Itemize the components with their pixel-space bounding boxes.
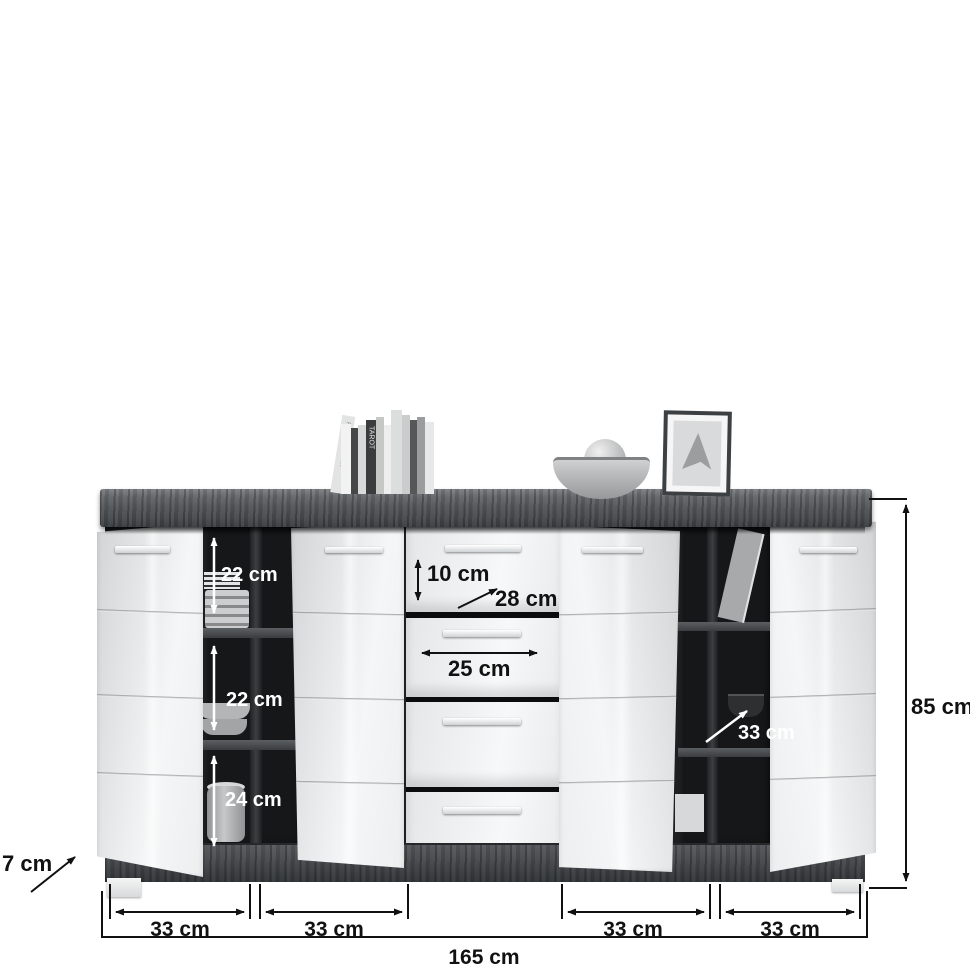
left-shelf-upper xyxy=(203,628,303,638)
drawer-2-handle xyxy=(443,630,521,637)
dim-label-width-2: 33 cm xyxy=(304,919,364,940)
picture-frame-image xyxy=(677,432,716,474)
picture-frame xyxy=(662,410,732,496)
door-far-right xyxy=(770,521,876,877)
dim-label-shelf-1: 22 cm xyxy=(221,565,278,585)
book xyxy=(410,420,417,494)
door-mid-right-handle xyxy=(582,547,643,553)
book xyxy=(425,422,434,494)
book xyxy=(341,424,351,494)
dim-label-base-height: 7 cm xyxy=(2,853,52,875)
door-mid-left xyxy=(291,521,404,874)
drawer-1-handle xyxy=(445,545,521,552)
right-shelf-lower xyxy=(678,748,772,757)
product-dimension-diagram: PHOTOGRAPHY TAROT xyxy=(0,0,970,971)
dim-label-shelf-2: 22 cm xyxy=(226,690,283,710)
sideboard-top-panel xyxy=(100,489,872,527)
stacked-bowls-lower xyxy=(201,719,247,735)
book: TAROT xyxy=(366,420,376,494)
dim-label-total-width: 165 cm xyxy=(448,947,519,968)
white-box xyxy=(675,794,704,832)
decor-bowl xyxy=(553,439,650,496)
dim-label-right-depth: 33 cm xyxy=(738,723,795,743)
dim-label-drawer-width: 25 cm xyxy=(448,658,510,680)
book xyxy=(376,417,384,494)
drawer-4-handle xyxy=(443,807,521,814)
right-compartment-divider xyxy=(707,527,718,845)
picture-frame-photo xyxy=(672,421,721,487)
book xyxy=(384,425,391,494)
top-panel-shadow xyxy=(105,527,865,534)
stacked-plates xyxy=(205,590,249,628)
right-shelf-upper xyxy=(678,622,772,631)
dim-label-drawer-diagonal: 28 cm xyxy=(495,588,557,610)
plinth xyxy=(105,843,865,882)
drawer-3 xyxy=(406,702,563,787)
book xyxy=(358,425,366,494)
book xyxy=(417,417,425,494)
dim-label-drawer-height: 10 cm xyxy=(427,563,489,585)
books-row: PHOTOGRAPHY TAROT xyxy=(330,406,440,494)
book xyxy=(402,415,410,494)
door-far-left xyxy=(97,522,203,877)
dim-label-width-4: 33 cm xyxy=(760,919,820,940)
book-spine-text: TAROT xyxy=(368,426,375,449)
door-gloss xyxy=(144,522,161,877)
door-gloss xyxy=(817,521,834,877)
dim-label-width-1: 33 cm xyxy=(150,919,210,940)
book xyxy=(391,410,402,494)
left-shelf-lower xyxy=(203,740,303,750)
dark-bowl xyxy=(728,694,764,717)
door-mid-right xyxy=(559,522,680,872)
book xyxy=(351,428,358,494)
door-far-left-handle xyxy=(115,546,170,553)
door-mid-left-handle xyxy=(325,547,383,553)
dim-label-total-height: 85 cm xyxy=(911,696,970,718)
dim-bracket-total-width xyxy=(102,891,867,937)
decor-bowl-body xyxy=(553,457,650,499)
dim-label-shelf-3: 24 cm xyxy=(225,790,282,810)
drawer-3-handle xyxy=(443,718,521,725)
dim-label-width-3: 33 cm xyxy=(603,919,663,940)
right-foot xyxy=(832,879,863,892)
left-foot xyxy=(107,878,141,897)
door-far-right-handle xyxy=(800,547,857,553)
